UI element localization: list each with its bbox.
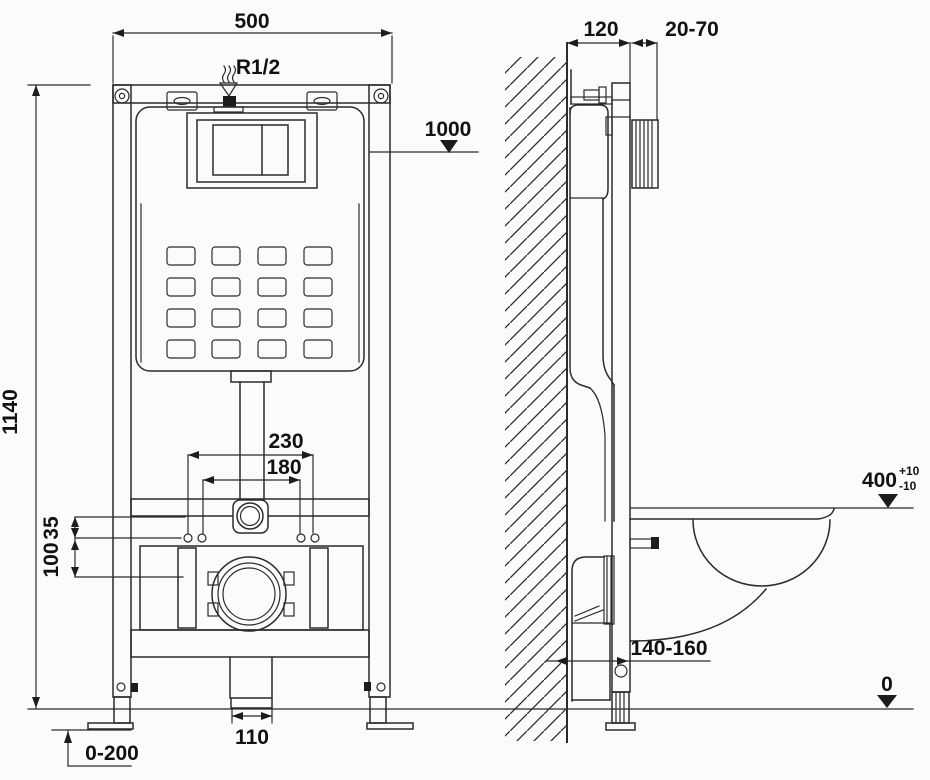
corner-screw-icon	[115, 89, 388, 103]
dim-1140: 1140	[0, 85, 90, 708]
waste-bend-side	[572, 556, 614, 701]
bottom-member	[131, 630, 369, 657]
dim-110-label: 110	[235, 726, 269, 749]
front-view: 500 R1/2 1000 1140 230	[0, 10, 478, 766]
dim-180-label: 180	[266, 456, 301, 479]
technical-drawing-page: 500 R1/2 1000 1140 230	[0, 0, 930, 780]
adjustable-feet	[88, 682, 413, 729]
installation-diagram: 500 R1/2 1000 1140 230	[0, 0, 930, 780]
dim-400-label: 400	[862, 469, 897, 492]
dim-1000-label: 1000	[425, 118, 472, 141]
dim-140-160-label: 140-160	[630, 637, 707, 660]
cistern-front	[136, 107, 364, 371]
dim-0-200: 0-200	[52, 730, 139, 766]
toilet-bowl-side	[630, 508, 913, 641]
flush-actuator-plate-side	[632, 120, 658, 188]
fixing-holes	[184, 534, 319, 542]
flush-pipe	[231, 371, 271, 500]
dim-140-160: 140-160	[546, 637, 710, 665]
dim-400-tol-plus: +10	[899, 464, 920, 478]
dim-110: 110	[232, 710, 272, 749]
side-view: 120 20-70 400 +10 -10 140-160 0	[505, 18, 920, 742]
cistern-side	[570, 105, 614, 521]
dim-20-70: 20-70	[632, 18, 719, 120]
wall-hatch	[505, 57, 567, 741]
waste-outlet-assembly	[140, 546, 363, 631]
dim-120: 120	[567, 18, 630, 83]
dim-20-70-label: 20-70	[665, 18, 719, 41]
frame-rail-side	[606, 83, 630, 692]
wall-anchor-bracket	[571, 70, 612, 104]
drain-pipe	[230, 657, 272, 708]
elbow-fitting	[233, 500, 268, 533]
dim-230-label: 230	[268, 430, 303, 453]
frame-right-column	[369, 85, 390, 697]
dim-400: 400 +10 -10	[862, 464, 920, 508]
dim-0-label: 0	[881, 673, 893, 696]
mounting-grid	[167, 247, 332, 358]
dim-35-label: 35	[40, 516, 63, 540]
dim-1000: 1000	[370, 118, 478, 153]
dim-1140-label: 1140	[0, 389, 22, 435]
flush-plate	[187, 113, 317, 188]
dim-400-tol-minus: -10	[899, 479, 917, 493]
inlet-label: R1/2	[236, 56, 280, 79]
dim-0: 0	[877, 673, 897, 708]
dim-100-label: 100	[40, 542, 63, 577]
dim-500-label: 500	[234, 10, 269, 33]
frame-top-rail	[113, 85, 390, 103]
dim-120-label: 120	[583, 18, 618, 41]
frame-left-column	[113, 85, 131, 697]
dim-0-200-label: 0-200	[85, 742, 139, 765]
